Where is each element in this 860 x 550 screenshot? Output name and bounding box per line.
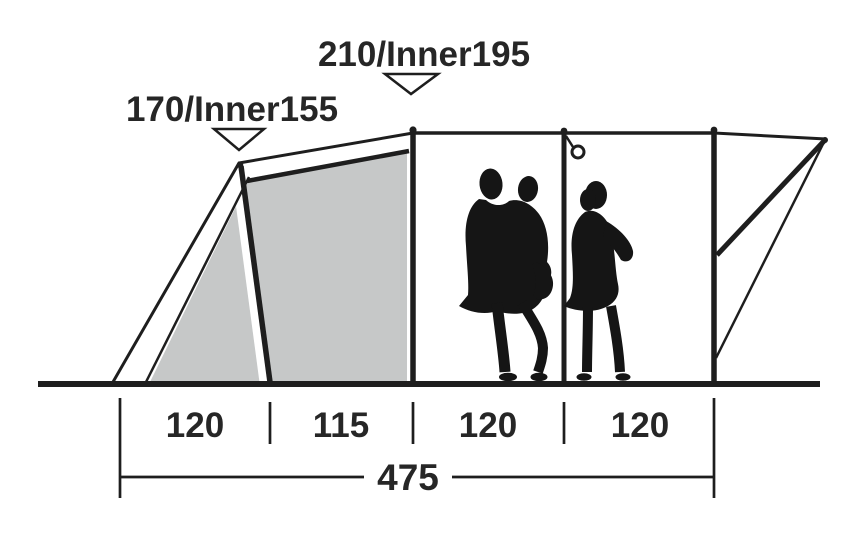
front-height-label: 170/Inner155 (126, 90, 338, 129)
lantern-hook-line (566, 136, 573, 147)
woman-left-foot (577, 373, 592, 381)
total-width-label: 475 (377, 457, 439, 498)
rear-tip-cap (822, 137, 828, 143)
rear-door-edge-thin (716, 140, 825, 358)
adult-head (478, 167, 504, 200)
woman-right-foot (616, 373, 631, 381)
rear-roof-line (714, 133, 826, 139)
diagram-canvas: 170/Inner155 210/Inner195 120 115 120 12… (0, 0, 860, 550)
main-height-arrow-icon (385, 74, 438, 94)
main-pole-cap (409, 126, 416, 133)
woman-silhouette (564, 181, 633, 381)
rear-door-edge-thick (717, 140, 825, 255)
segment-width-label-4: 120 (611, 406, 669, 445)
width-dimension-labels: 120 115 120 120 475 (166, 406, 669, 498)
adult-front-foot (499, 373, 517, 381)
adult-with-child-silhouette (459, 167, 553, 381)
tent-dimension-diagram: 170/Inner155 210/Inner195 120 115 120 12… (0, 0, 860, 550)
adult-front-leg (497, 303, 505, 372)
segment-width-label-3: 120 (459, 406, 517, 445)
adult-back-foot (531, 373, 548, 381)
main-height-label: 210/Inner195 (318, 35, 530, 74)
woman-left-leg (587, 306, 588, 372)
lantern-hook-ring (572, 146, 584, 158)
segment-width-label-2: 115 (313, 406, 369, 445)
tent-structure (38, 126, 828, 384)
scale-figures (459, 167, 633, 381)
rear-pole-cap (711, 127, 718, 134)
front-height-arrow-icon (214, 129, 264, 150)
woman-hair (580, 189, 596, 211)
segment-width-label-1: 120 (166, 406, 224, 445)
child-head (516, 175, 539, 204)
middle-pole-cap (561, 128, 568, 135)
adult-back-leg (522, 303, 543, 372)
woman-right-leg (611, 306, 620, 372)
front-pole-cap (237, 162, 243, 168)
inner-tent-panel (150, 150, 407, 382)
